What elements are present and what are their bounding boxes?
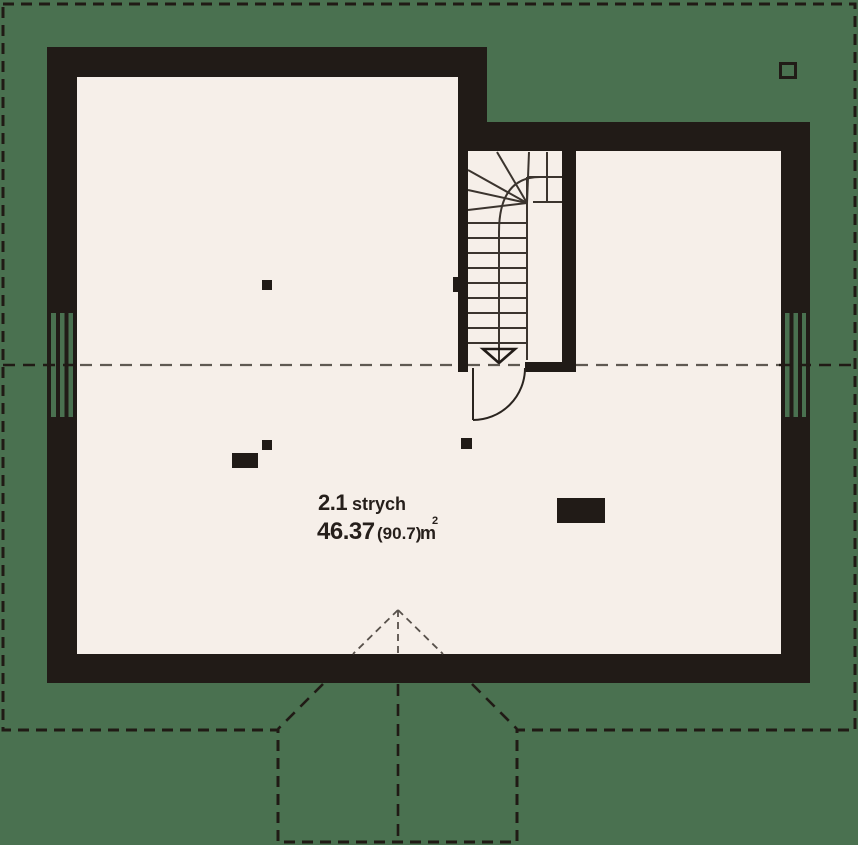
area-unit-exponent: 2 xyxy=(432,515,438,527)
floor-plan-canvas: 2.1 strych 46.37 (90.7) m 2 xyxy=(0,0,858,845)
post-marker-2 xyxy=(262,440,272,450)
room-number: 2.1 xyxy=(318,490,347,515)
room-name: strych xyxy=(352,494,406,514)
floor-plan-drawing: 2.1 strych 46.37 (90.7) m 2 xyxy=(0,0,858,845)
stairwell-wall-left xyxy=(458,151,468,372)
post-marker-1 xyxy=(262,280,272,290)
window-left-frame-line xyxy=(56,313,60,417)
room-area: 46.37 xyxy=(317,518,375,545)
stairwell-wall-right xyxy=(562,151,576,372)
room-area-alt: (90.7) xyxy=(377,524,421,543)
chimney-block-left xyxy=(232,453,258,468)
stairwell-wall-bottom xyxy=(525,362,576,372)
chimney-block-right xyxy=(557,498,605,523)
stairwell-wall-pilaster xyxy=(453,277,468,292)
post-marker-3 xyxy=(461,438,472,449)
